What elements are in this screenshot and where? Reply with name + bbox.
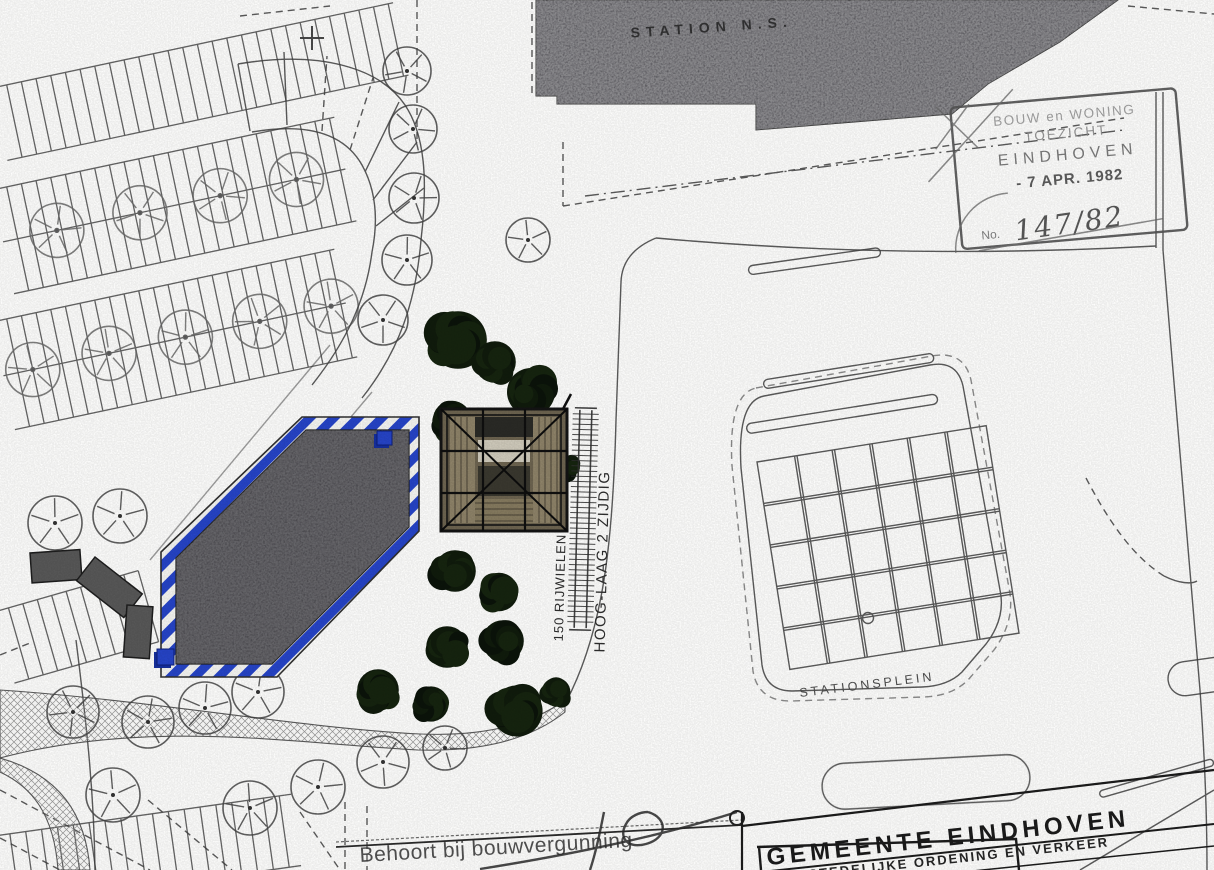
site-plan: STATION N.S.	[0, 0, 1214, 870]
noise-overlay	[0, 0, 1214, 870]
